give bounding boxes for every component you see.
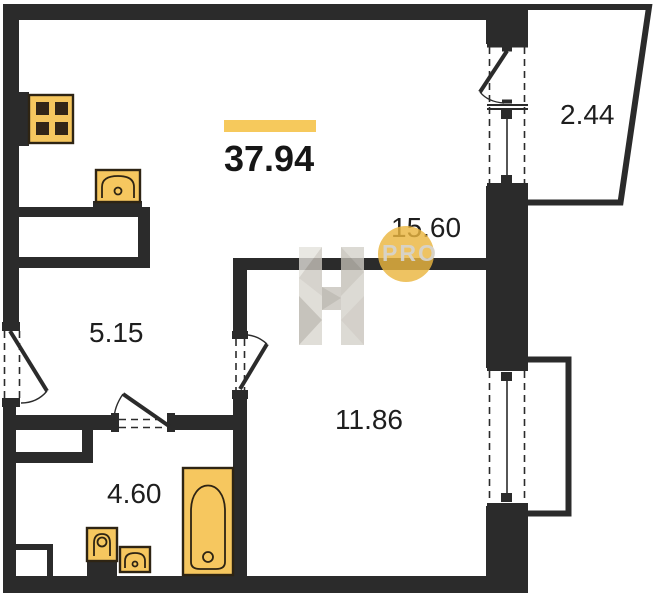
entry-door-swing-arc (21, 391, 47, 403)
entry-door (5, 331, 48, 403)
watermark-pro-text: PRO (382, 240, 438, 266)
kitchen-sink-icon (96, 170, 140, 202)
floor-plan-drawing: 37.94 15.60 5.15 11.86 4.60 2.44 PRO (0, 0, 663, 600)
room-label-hallway: 5.15 (89, 317, 144, 348)
loggia-outline (528, 360, 569, 514)
bathtub-icon (183, 468, 233, 575)
bathroom-door-leaf (123, 394, 169, 426)
total-area-accent-bar (224, 120, 316, 132)
bedroom-window (487, 368, 528, 506)
room-label-bathroom: 4.60 (107, 478, 162, 509)
bathroom-door (114, 394, 169, 428)
stove-icon (29, 95, 73, 143)
room-label-balcony: 2.44 (560, 99, 615, 130)
total-area-label: 37.94 (224, 138, 314, 179)
balcony-door-window (480, 44, 528, 186)
bathroom-sink-icon (120, 547, 150, 572)
balcony-door-swing-arc (480, 92, 504, 103)
entry-door-leaf (10, 331, 47, 391)
bedroom-door (236, 335, 267, 390)
room-label-bedroom: 11.86 (335, 404, 403, 435)
toilet-icon (87, 528, 117, 561)
balcony-door-leaf (480, 51, 507, 92)
floor-plan: 37.94 15.60 5.15 11.86 4.60 2.44 PRO (0, 0, 663, 600)
bedroom-door-swing-arc (248, 335, 267, 344)
walls (2, 4, 528, 593)
